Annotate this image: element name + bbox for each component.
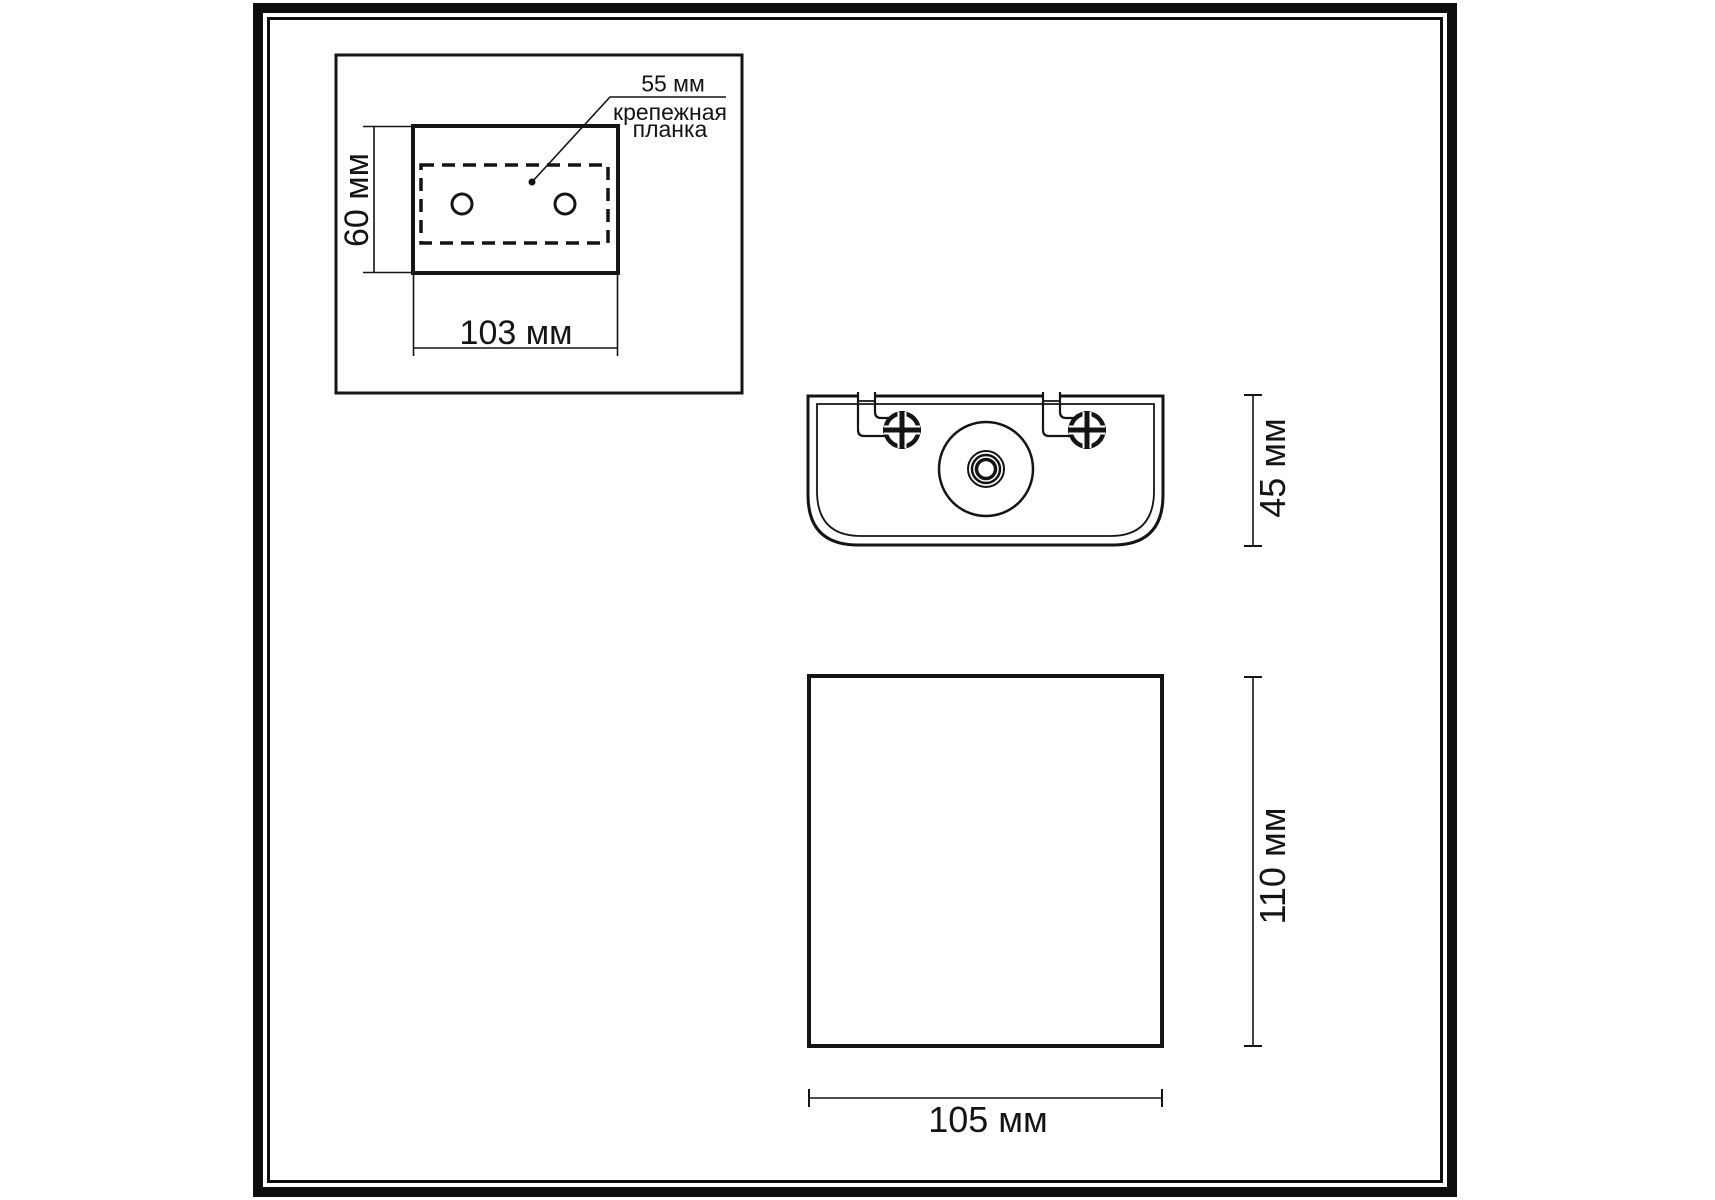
notch-left-cutout: [859, 391, 875, 401]
cable-entry: [939, 422, 1033, 516]
callout-55mm-label: 55 мм: [641, 71, 705, 98]
dimension-103mm-label: 103 мм: [460, 316, 573, 350]
dimension-60mm-label: 60 мм: [340, 153, 374, 247]
dimension-45mm-label: 45 мм: [1255, 418, 1291, 518]
drawing-linework: [0, 0, 1715, 1200]
plate-outline: [413, 126, 618, 273]
cable-entry-boss: [939, 422, 1033, 516]
callout-caption: крепежная планка: [613, 104, 727, 138]
fixture-front-view: [809, 676, 1262, 1107]
mounting-hole-left: [452, 194, 472, 214]
dimension-110mm-label: 110 мм: [1255, 808, 1291, 925]
mounting-hole-right: [555, 194, 575, 214]
front-outline: [809, 676, 1162, 1046]
notch-right-cutout: [1044, 391, 1060, 401]
technical-drawing-page: 55 мм крепежная планка 60 мм 103 мм 45 м…: [0, 0, 1715, 1200]
fixture-top-view: [808, 391, 1262, 546]
dimension-105mm-label: 105 мм: [928, 1102, 1048, 1138]
mounting-bar-dashed-outline: [421, 165, 608, 243]
